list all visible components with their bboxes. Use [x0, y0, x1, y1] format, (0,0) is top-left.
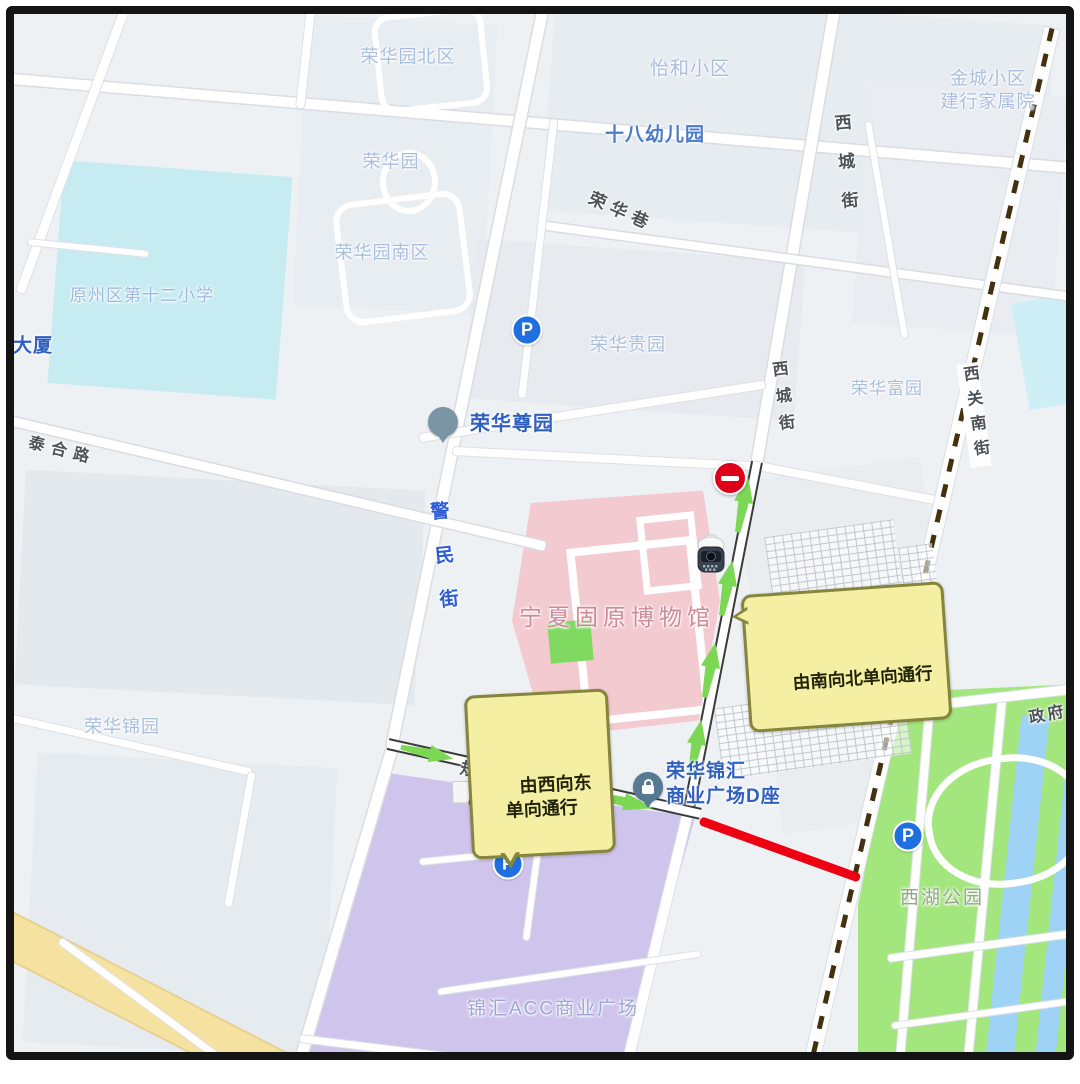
label-ronghuayuan-north: 荣华园北区	[361, 45, 456, 68]
dome-camera-icon	[692, 534, 730, 580]
road-museum-north	[453, 447, 753, 470]
label-ronghuayuan-south: 荣华园南区	[335, 241, 430, 264]
label-yihe-community: 怡和小区	[650, 58, 730, 83]
label-jincheng-community: 金城小区 建行家属院	[941, 68, 1036, 115]
map-viewport: 荣华园北区 怡和小区 金城小区 建行家属院 十八幼儿园 西城街 荣华巷 荣华园 …	[12, 12, 1068, 1056]
school-area	[47, 160, 293, 400]
label-building-dasha: 大厦	[13, 335, 53, 360]
lock-icon	[642, 785, 654, 794]
no-entry-sign-icon	[713, 461, 747, 495]
label-ronghua-jinyuan: 荣华锦园	[84, 715, 160, 738]
callout-tail-fill	[729, 609, 750, 624]
label-jinhui-acc-plaza: 锦汇ACC商业广场	[467, 998, 639, 1023]
label-ronghua-fuyuan: 荣华富园	[851, 378, 923, 400]
cyan-block-east	[1011, 294, 1068, 411]
label-no18-kindergarten: 十八幼儿园	[605, 124, 705, 149]
poi-pin-ronghua-jinhui[interactable]	[633, 772, 663, 802]
label-xihu-park: 西湖公园	[900, 887, 984, 912]
callout-text: 由南向北单向通行	[792, 663, 933, 693]
label-museum: 宁夏固原博物馆	[519, 603, 715, 633]
parking-badge[interactable]: P	[512, 315, 543, 346]
parking-badge[interactable]: P	[893, 821, 924, 852]
poi-pin-ronghua-zunyuan[interactable]	[428, 407, 458, 437]
callout-south-to-north: 由南向北单向通行	[740, 581, 952, 733]
callout-tail-fill	[502, 849, 519, 871]
map-screenshot: 荣华园北区 怡和小区 金城小区 建行家属院 十八幼儿园 西城街 荣华巷 荣华园 …	[0, 0, 1080, 1084]
map-canvas[interactable]: 荣华园北区 怡和小区 金城小区 建行家属院 十八幼儿园 西城街 荣华巷 荣华园 …	[12, 12, 1068, 1056]
label-ronghua-zunyuan: 荣华尊园	[470, 411, 554, 437]
label-no12-primary-school: 原州区第十二小学	[70, 285, 214, 307]
callout-west-to-east: 由西向东 单向通行	[464, 688, 616, 860]
label-ronghua-jinhui-plaza-d: 荣华锦汇 商业广场D座	[666, 760, 781, 809]
callout-text: 由西向东 单向通行	[505, 773, 592, 821]
label-ronghua-guiyuan: 荣华贵园	[590, 333, 666, 356]
label-ronghuayuan: 荣华园	[363, 150, 420, 173]
